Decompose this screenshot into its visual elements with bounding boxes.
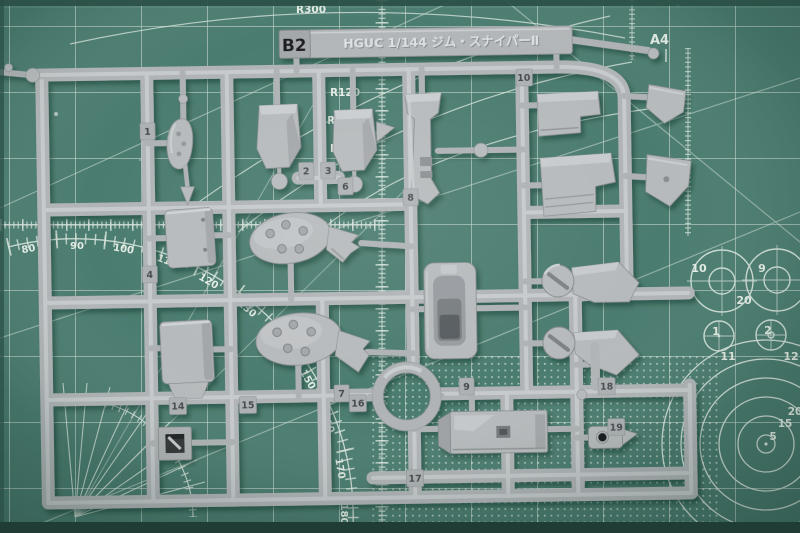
photo-canvas: R300 R120 R100 R80 bbox=[0, 0, 800, 533]
mat-edge-left bbox=[0, 0, 4, 533]
mat-edge-bottom bbox=[0, 522, 800, 533]
mat-edge-top bbox=[0, 0, 800, 6]
lighting-vignette bbox=[0, 0, 800, 533]
photo-svg: R300 R120 R100 R80 bbox=[0, 0, 800, 533]
